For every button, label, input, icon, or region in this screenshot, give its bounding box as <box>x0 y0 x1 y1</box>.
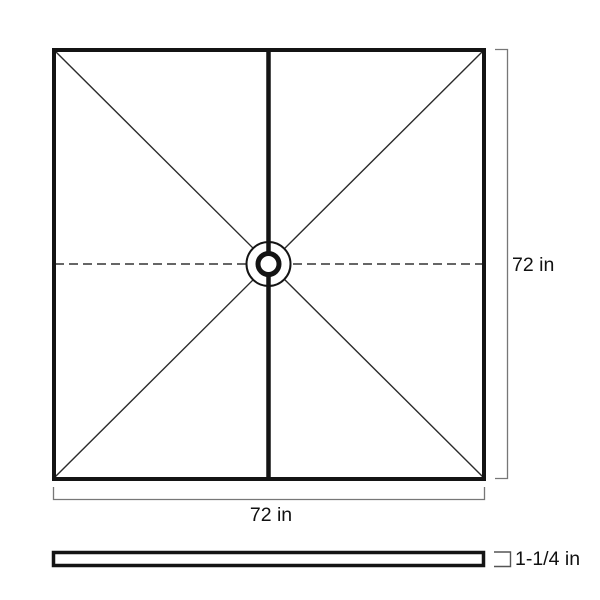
height-dimension-line <box>495 50 508 479</box>
side-profile-bar <box>54 553 484 566</box>
width-dimension-label: 72 in <box>250 504 292 526</box>
drain-ring <box>258 254 279 275</box>
side-profile-view: 1-1/4 in <box>54 548 581 570</box>
product-dimension-diagram: 72 in 72 in 1-1/4 in <box>0 0 600 600</box>
top-view <box>54 50 484 479</box>
dimension-diagram-page: 72 in 72 in 1-1/4 in <box>0 0 600 600</box>
width-dimension-line <box>54 487 485 500</box>
thickness-dimension-label: 1-1/4 in <box>515 548 580 570</box>
height-dimension-label: 72 in <box>512 254 554 276</box>
thickness-bracket <box>494 552 511 567</box>
